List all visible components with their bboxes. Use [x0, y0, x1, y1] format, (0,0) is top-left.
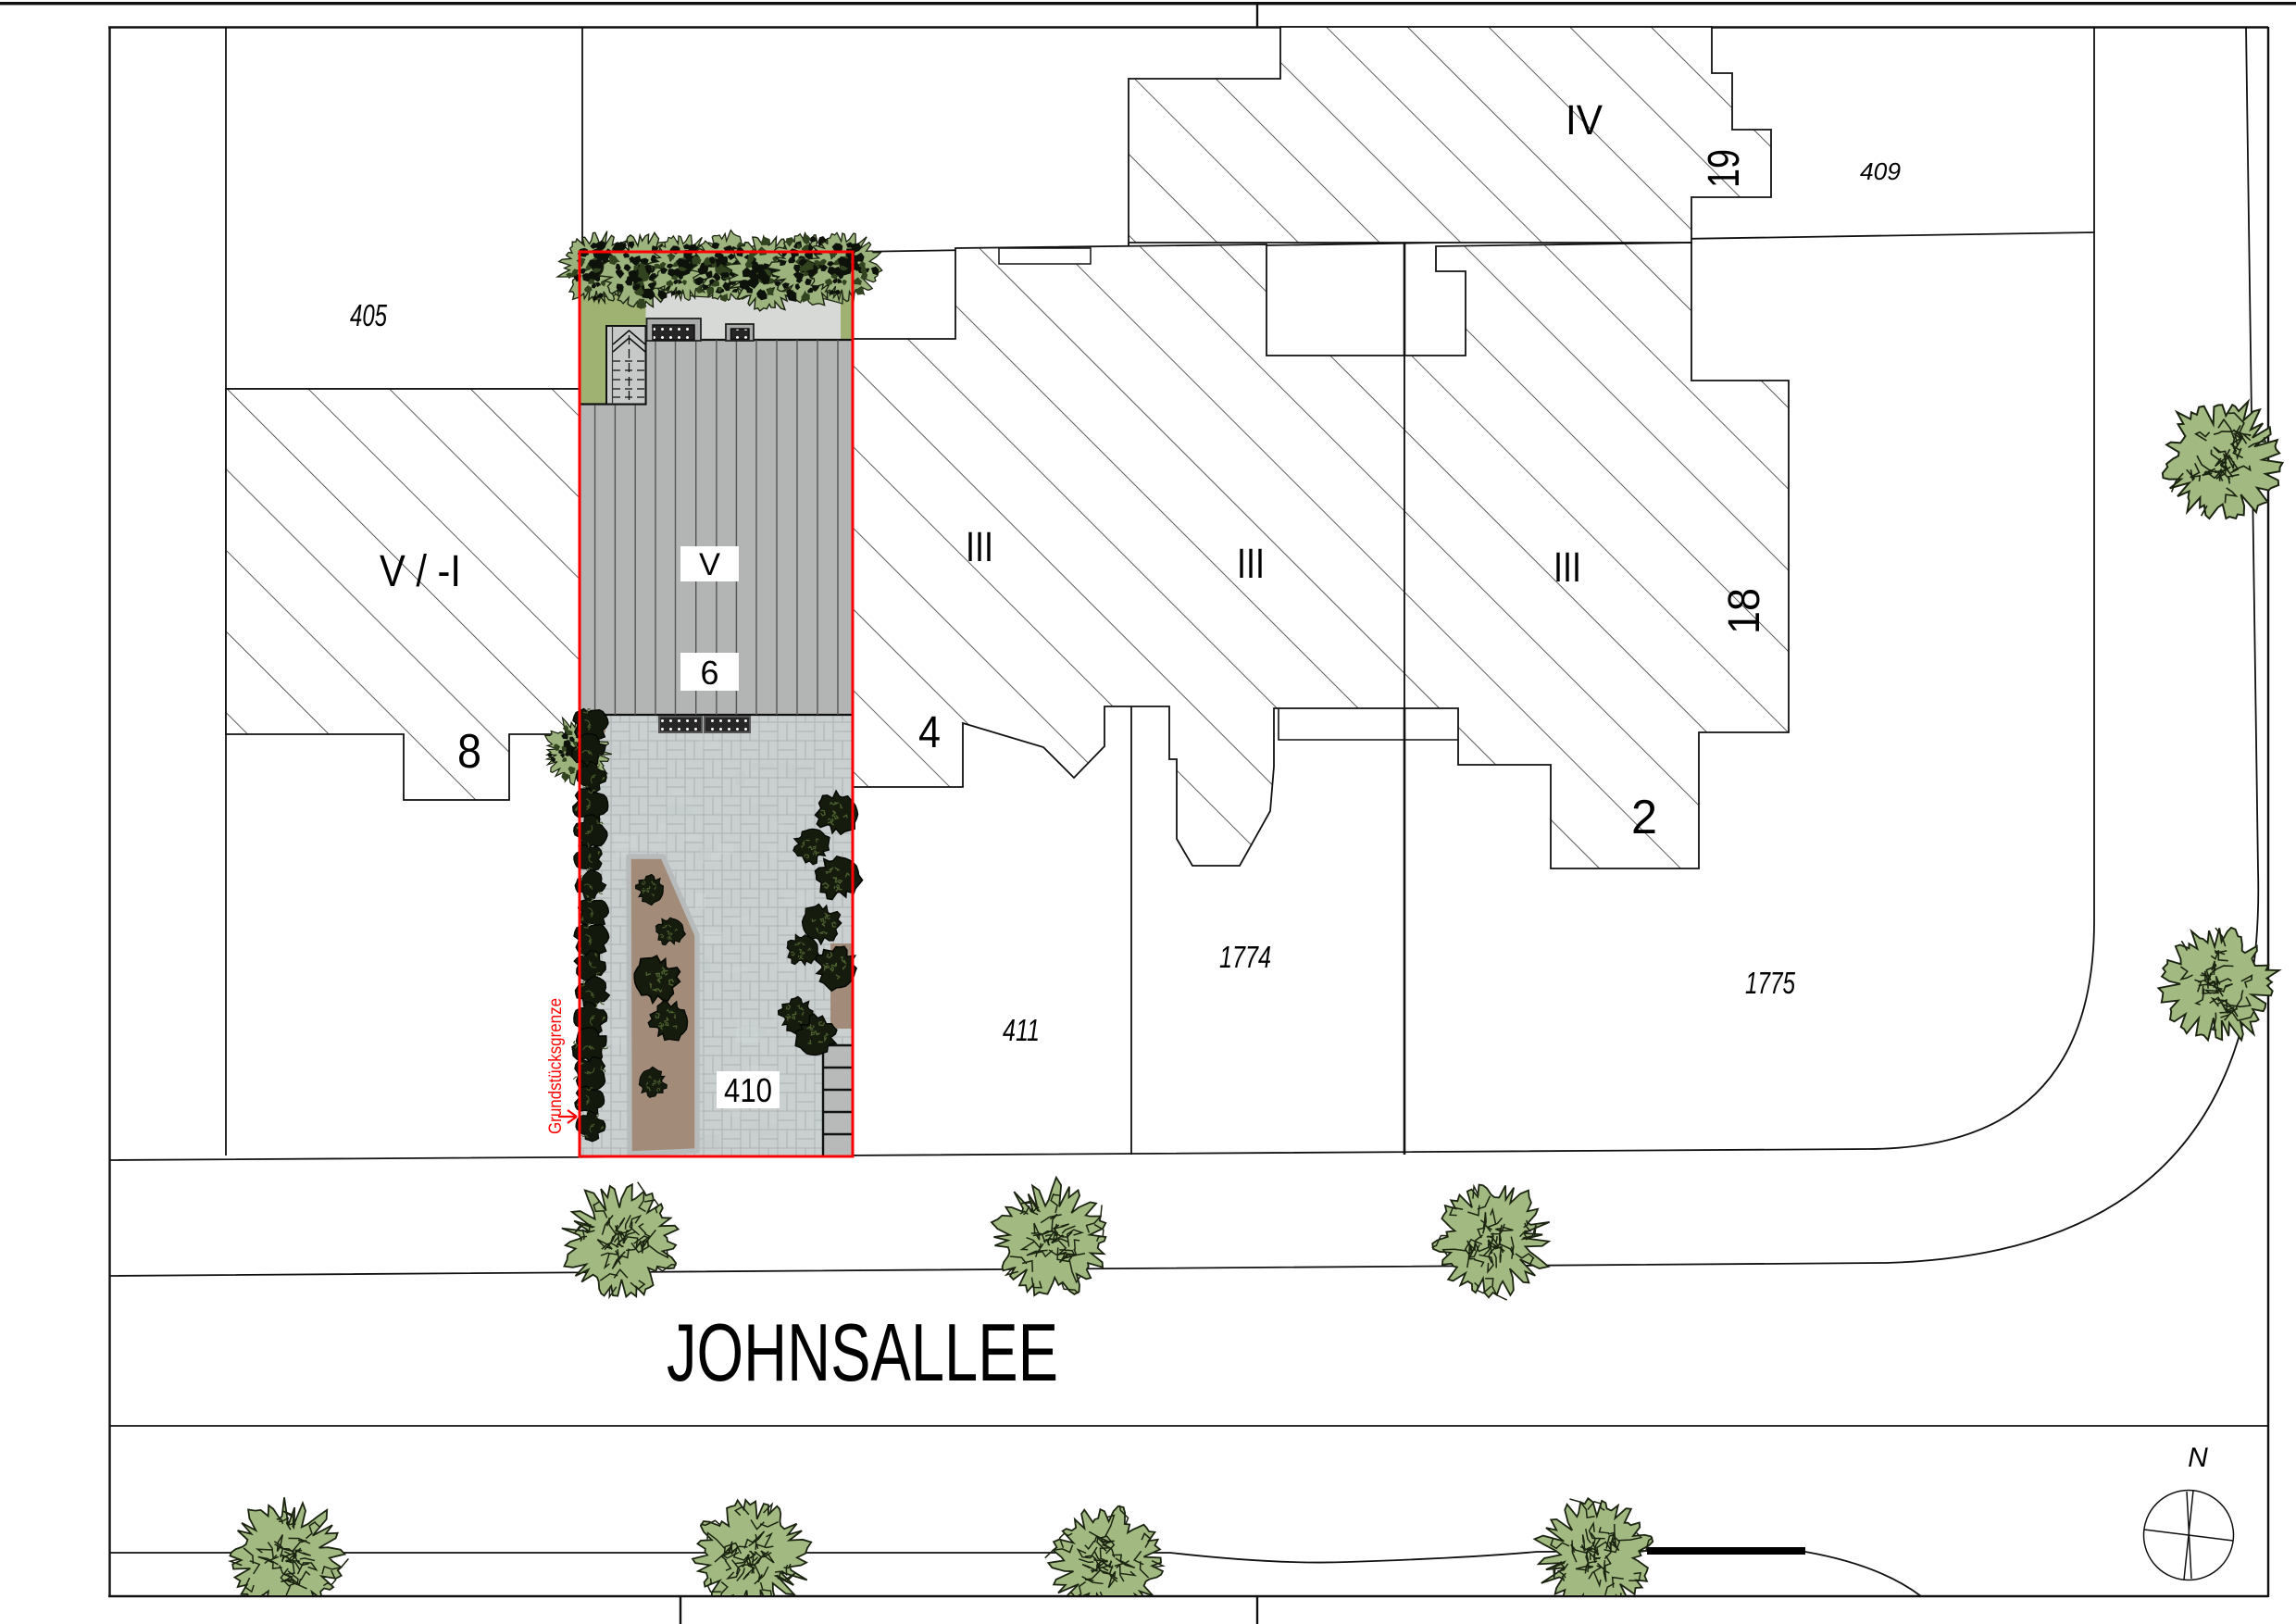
svg-text:411: 411: [1003, 1013, 1040, 1047]
svg-text:V: V: [699, 547, 720, 582]
svg-text:III: III: [1554, 543, 1581, 591]
svg-text:19: 19: [1700, 149, 1749, 188]
svg-text:8: 8: [457, 725, 481, 779]
svg-text:1774: 1774: [1219, 940, 1271, 974]
svg-text:6: 6: [701, 654, 719, 692]
svg-text:4: 4: [918, 708, 941, 757]
svg-text:410: 410: [724, 1071, 772, 1109]
svg-text:2: 2: [1631, 791, 1657, 844]
svg-text:JOHNSALLEE: JOHNSALLEE: [667, 1306, 1058, 1398]
svg-text:1775: 1775: [1745, 966, 1795, 1000]
svg-text:N: N: [2188, 1443, 2208, 1473]
svg-text:Grundstücksgrenze: Grundstücksgrenze: [546, 998, 566, 1134]
svg-text:18: 18: [1720, 588, 1769, 634]
svg-text:III: III: [1237, 540, 1265, 587]
svg-text:V / -I: V / -I: [380, 547, 461, 596]
svg-text:405: 405: [350, 298, 387, 332]
svg-text:409: 409: [1860, 157, 1901, 185]
svg-text:IV: IV: [1566, 96, 1603, 144]
svg-text:III: III: [966, 523, 993, 570]
